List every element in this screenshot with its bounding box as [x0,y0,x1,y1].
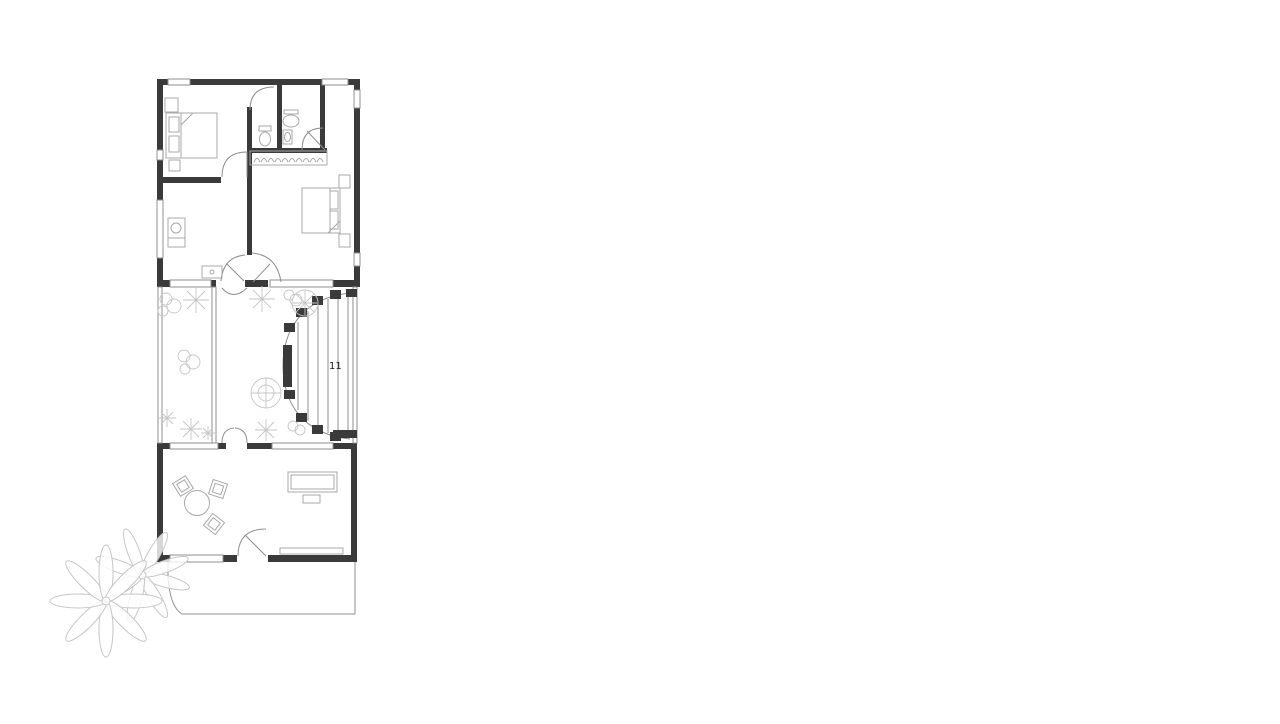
window [157,150,163,160]
cabinet-icon [165,98,178,112]
window [354,253,360,266]
door-arc [222,288,247,295]
sofa-icon [288,472,337,492]
tv-console-icon [280,548,343,554]
double-door-arcs [222,428,247,443]
window [322,79,348,85]
dining-chair-icon [209,480,228,499]
living-room-furniture [173,472,343,554]
upper-block-walls [157,79,360,287]
coffee-table-icon [303,495,320,503]
window [157,200,163,258]
floor-plan-canvas: 11 [0,0,1280,720]
window [272,443,333,449]
courtyard-left-fence [158,287,162,443]
nightstand-icon [169,160,180,171]
toilet-icon [259,126,271,146]
terrace-outline [168,562,355,614]
door-arc [252,253,281,282]
toilet-icon [283,110,299,127]
window [170,280,211,287]
stair-wall-blocks [283,289,357,441]
door-arc [222,152,247,177]
fan-staircase: 11 [283,289,357,441]
door-arc [250,87,274,110]
wardrobe-rail-icon [250,151,327,165]
bedroom-1-furniture [165,98,217,171]
courtyard-divider-fence [212,287,216,443]
courtyard-plants [158,286,318,441]
door-arc [238,529,266,556]
double-bed-icon [166,113,217,158]
utility-room-fixtures [168,218,222,278]
palm-cluster [50,545,162,657]
bedroom-2-furniture [302,175,350,247]
window [354,90,360,108]
utility-sink-icon [168,218,185,247]
appliance-icon [202,266,222,278]
floor-plan-drawing: 11 [0,0,1280,720]
door-swings [221,87,325,556]
courtyard-right-fence [353,287,357,443]
nightstand-icon [339,175,350,188]
dining-chair-icon [173,476,194,497]
window [270,280,333,287]
dining-table-icon [185,491,210,516]
washbasin-icon [283,130,292,144]
window [168,79,190,85]
stair-count-label: 11 [329,361,342,372]
lower-block-walls [157,443,357,562]
nightstand-icon [339,234,350,247]
door-arc [221,255,245,281]
dining-chair-icon [203,513,224,534]
window [170,443,218,449]
double-bed-icon [302,188,340,233]
grass-tuft-icon [158,286,277,441]
